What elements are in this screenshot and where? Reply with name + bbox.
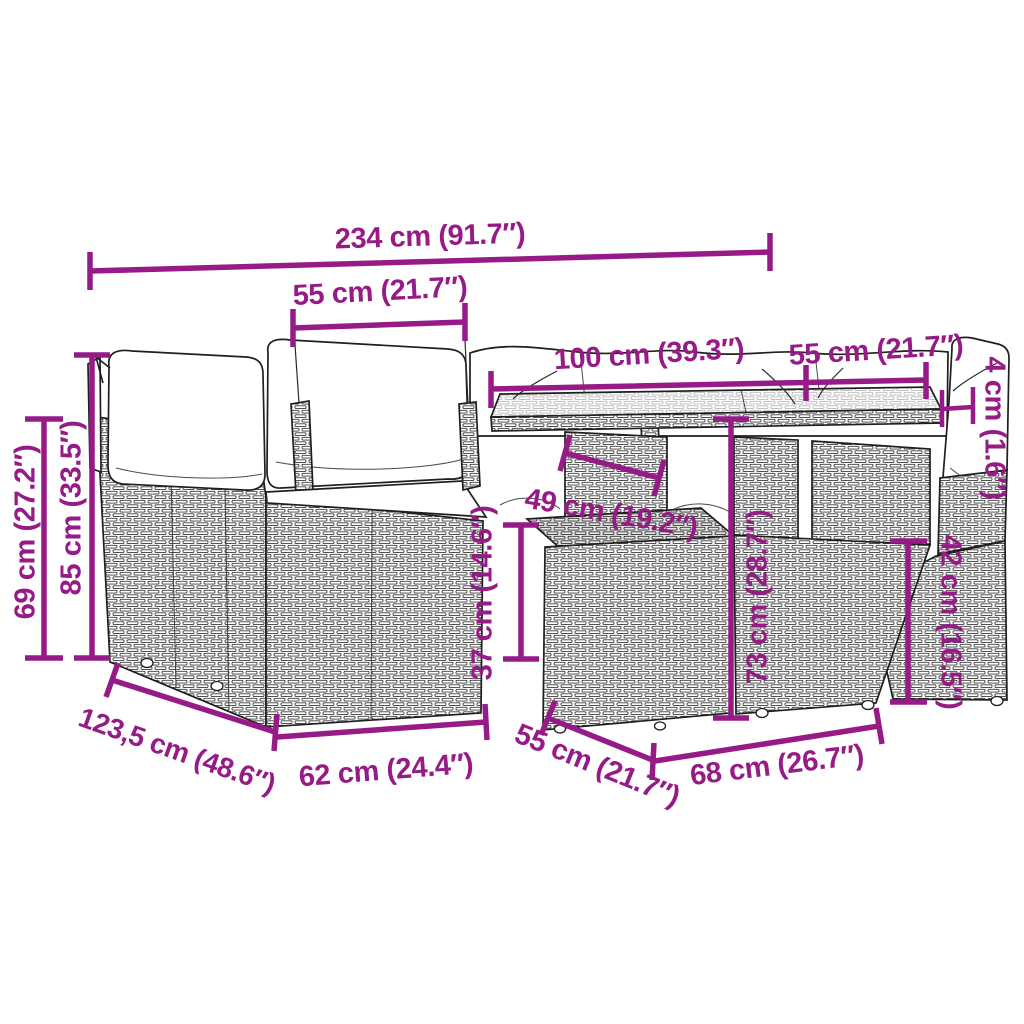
sofa-left-seat-box [266, 497, 483, 727]
sofa-left [88, 339, 486, 727]
footstool-front [543, 536, 733, 730]
dimension-diagram: 234 cm (91.7″) 55 cm (21.7″) 100 cm (39.… [0, 0, 1024, 1024]
dim-label-seat-height: 69 cm (27.2″) [12, 445, 41, 620]
dim-line-footstool-height [503, 525, 539, 659]
rear-post-left [459, 402, 480, 490]
dim-label-back-height: 85 cm (33.5″) [58, 421, 87, 596]
sofa-left-back-cushion [108, 350, 265, 490]
table-pedestal-right [812, 441, 930, 545]
furniture-illustration [0, 0, 1024, 1024]
dim-label-side-seat-height: 42 cm (16.5″) [936, 535, 965, 710]
dim-label-footstool-height: 37 cm (14.6″) [469, 506, 498, 681]
footstool [527, 508, 734, 733]
dim-label-total-width: 234 cm (91.7″) [334, 220, 525, 255]
dim-label-glass-thickness: 4 cm (1.6″) [980, 356, 1009, 499]
dim-label-table-height: 73 cm (28.7″) [744, 510, 773, 685]
